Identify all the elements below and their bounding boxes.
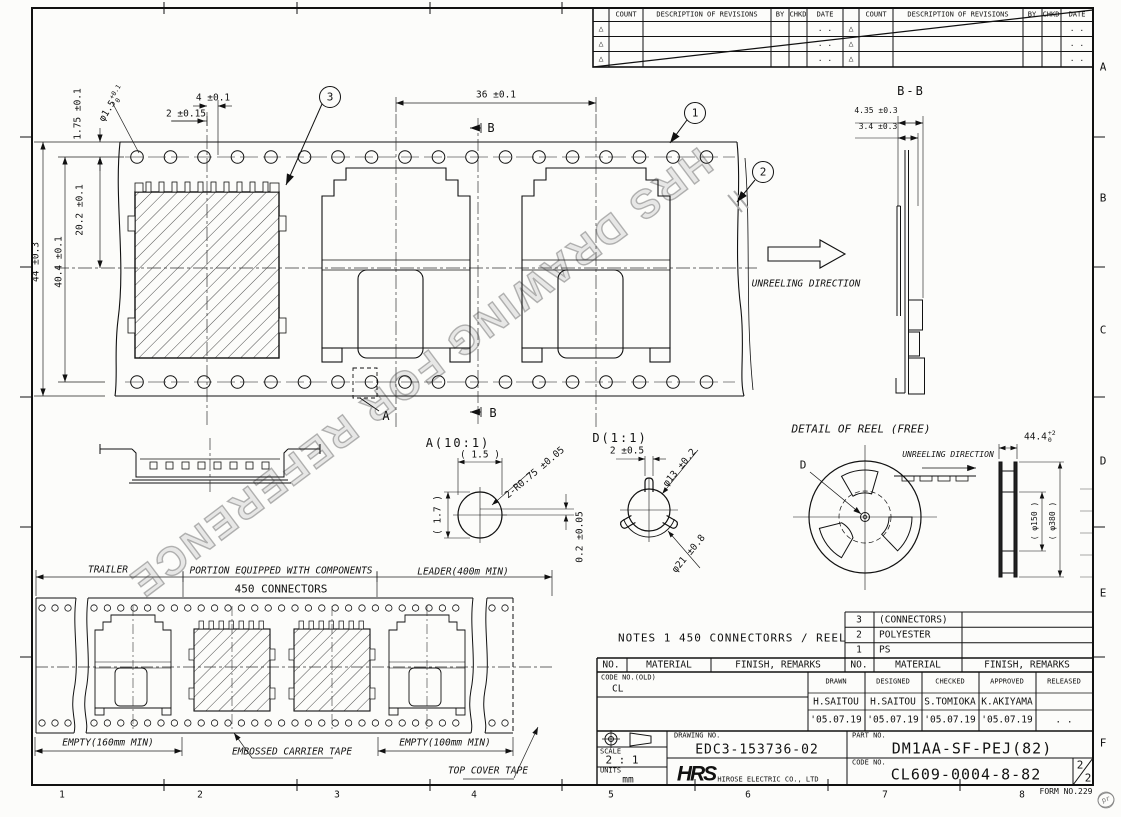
rev-by-header2: BY [1028, 12, 1036, 19]
role-checked: CHECKED [935, 679, 965, 686]
materials-material-header: MATERIAL [646, 660, 692, 670]
code-old-value: CL [612, 684, 623, 694]
zone-letter: A [1100, 62, 1107, 73]
signer-approved: K.AKIYAMA [981, 697, 1032, 707]
role-designed: DESIGNED [876, 679, 910, 686]
reel-side-view [999, 444, 1092, 577]
dim-reel-flange: ( φ380 ) [1049, 502, 1057, 541]
drawing-no-label: DRAWING NO. [674, 733, 720, 740]
detail-a-callout-label: A [382, 410, 391, 422]
reel-detail-d-label: D [800, 460, 807, 471]
date-checked: '05.07.19 [924, 715, 975, 725]
reel-view [793, 445, 976, 590]
zone-number: 6 [745, 790, 751, 800]
dim-a-offset: 0.2 ±0.05 [575, 511, 585, 562]
unreeling-direction-label: UNREELING DIRECTION [752, 279, 861, 289]
dim-hole-to-pocket: 2 ±0.15 [166, 109, 206, 119]
material-row-no: 1 [856, 645, 862, 655]
rev-date-dots: . . [818, 40, 832, 48]
code-no-value: CL609-0004-8-82 [891, 768, 1041, 783]
strip-leader-label: LEADER(400m MIN) [417, 567, 509, 577]
engineering-drawing-sheet: HRS DRAWING FOR REFERENCE [0, 0, 1121, 817]
sheet-total: 2 [1085, 773, 1092, 784]
signer-designed: H.SAITOU [870, 697, 916, 707]
strip-pocket-empty [95, 606, 171, 729]
strip-carrier-label: EMBOSSED CARRIER TAPE [232, 747, 352, 757]
date-designed: '05.07.19 [867, 715, 918, 725]
drawing-linework [0, 0, 1121, 817]
material-row-no: 2 [856, 630, 862, 640]
part-no-label: PART NO. [852, 733, 886, 740]
scale-value: 2 : 1 [605, 755, 638, 766]
reel-unreeling-label: UNREELING DIRECTION [902, 451, 994, 459]
material-row-name: POLYESTER [879, 630, 930, 640]
dim-reel-width-value: 44.4 [1024, 432, 1047, 443]
material-row-name: (CONNECTORS) [879, 615, 948, 625]
materials-no-header2: NO. [850, 660, 867, 670]
dim-tape-width: 44 ±0.3 [31, 242, 41, 282]
zone-number: 5 [608, 790, 614, 800]
rev-date-dots: . . [818, 55, 832, 63]
materials-finish-header: FINISH, REMARKS [735, 660, 821, 670]
rev-chkd-header2: CHKD [1043, 12, 1060, 19]
materials-finish-header2: FINISH, REMARKS [984, 660, 1070, 670]
dim-hole-span: 40.4 ±0.1 [54, 236, 64, 287]
part-no-value: DM1AA-SF-PEJ(82) [892, 742, 1053, 757]
notes-text: NOTES 1 450 CONNECTORRS / REEL [618, 633, 847, 644]
dim-reel-hub: ( φ150 ) [1031, 502, 1039, 541]
rev-chkd-header: CHKD [790, 12, 807, 19]
zone-letter: E [1100, 588, 1107, 599]
role-released: RELEASED [1047, 679, 1081, 686]
date-drawn: '05.07.19 [810, 715, 861, 725]
signer-checked: S.TOMIOKA [924, 697, 975, 707]
unreeling-arrow [768, 240, 845, 268]
tape-cross-section [100, 438, 320, 492]
balloon-leaders [286, 87, 774, 203]
rev-triangle-icon: △ [599, 25, 604, 33]
dim-a-width: ( 1.5 ) [460, 450, 500, 460]
balloon-2: 2 [760, 167, 767, 178]
rev-date-dots: . . [818, 25, 832, 33]
dim-d-tab: 2 ±0.5 [610, 446, 644, 456]
zone-number: 3 [334, 790, 340, 800]
dim-pocket-offset: 4 ±0.1 [196, 93, 230, 103]
strip-connectors-label: 450 CONNECTORS [235, 584, 328, 595]
materials-no-header: NO. [602, 660, 619, 670]
detail-d-title: D(1:1) [592, 432, 647, 444]
company-name: HIROSE ELECTRIC CO., LTD [717, 777, 818, 784]
dim-reel-width: 44.4+20 [1024, 430, 1056, 444]
material-row-name: PS [879, 645, 890, 655]
rev-date-dots: . . [1070, 25, 1084, 33]
rev-count-header2: COUNT [865, 12, 886, 19]
code-no-label: CODE NO. [852, 760, 886, 767]
dim-edge-to-hole: 1.75 ±0.1 [73, 88, 83, 139]
section-bb-view [855, 116, 925, 394]
units-value: mm [622, 775, 633, 785]
role-approved: APPROVED [990, 679, 1024, 686]
zone-number: 4 [471, 790, 477, 800]
form-no: FORM NO.229 [1040, 788, 1093, 796]
date-released: . . [1055, 715, 1072, 725]
zone-number: 8 [1019, 790, 1025, 800]
hrs-logo: HRS [677, 764, 715, 785]
dim-center-to-hole: 20.2 ±0.1 [75, 184, 85, 235]
zone-letter: C [1100, 325, 1107, 336]
dim-bb-outer: 4.35 ±0.3 [854, 107, 897, 115]
section-b-label-top: B [487, 122, 496, 134]
zone-letter: D [1100, 456, 1107, 467]
pocket-hatched [128, 112, 286, 428]
rev-date-header: DATE [817, 12, 834, 19]
rev-date-header2: DATE [1069, 12, 1086, 19]
material-row-no: 3 [856, 615, 862, 625]
rev-triangle-icon: △ [849, 25, 854, 33]
date-approved: '05.07.19 [981, 715, 1032, 725]
role-drawn: DRAWN [825, 679, 846, 686]
strip-pocket-hatched [189, 606, 275, 729]
rev-triangle-icon: △ [849, 40, 854, 48]
strip-cover-label: TOP COVER TAPE [448, 766, 528, 776]
dim-a-height: ( 1.7 ) [433, 495, 443, 535]
zone-number: 1 [59, 790, 65, 800]
sheet-number: 2 [1077, 760, 1084, 771]
balloon-3: 3 [327, 92, 334, 103]
drawing-no-value: EDC3-153736-02 [695, 744, 819, 757]
rev-triangle-icon: △ [599, 55, 604, 63]
strip-trailer-label: TRAILER [88, 565, 128, 575]
dim-bb-inner: 3.4 ±0.3 [859, 123, 898, 131]
zone-number: 2 [197, 790, 203, 800]
reel-title: DETAIL OF REEL (FREE) [791, 424, 930, 435]
strip-empty-right-label: EMPTY(100mm MIN) [399, 738, 491, 748]
section-b-label-bottom: B [489, 407, 498, 419]
detail-a-title: A(10:1) [426, 437, 491, 449]
rev-date-dots: . . [1070, 55, 1084, 63]
zone-letter: F [1100, 738, 1107, 749]
rev-count-header: COUNT [615, 12, 636, 19]
rev-triangle-icon: △ [599, 40, 604, 48]
dim-pocket-pitch: 36 ±0.1 [476, 90, 516, 100]
balloon-1: 1 [692, 108, 699, 119]
code-old-label: CODE NO.(OLD) [601, 675, 656, 682]
rev-triangle-icon: △ [849, 55, 854, 63]
rev-desc-header2: DESCRIPTION OF REVISIONS [907, 12, 1008, 19]
signer-drawn: H.SAITOU [813, 697, 859, 707]
section-bb-title: B-B [897, 85, 925, 97]
strip-portion-label: PORTION EQUIPPED WITH COMPONENTS [189, 566, 372, 576]
zone-number: 7 [882, 790, 888, 800]
rev-by-header: BY [776, 12, 784, 19]
section-callouts [353, 118, 481, 425]
strip-empty-left-label: EMPTY(160mm MIN) [62, 738, 154, 748]
materials-material-header2: MATERIAL [895, 660, 941, 670]
rev-date-dots: . . [1070, 40, 1084, 48]
dim-reel-width-tolerance: +20 [1048, 430, 1056, 444]
zone-letter: B [1100, 193, 1107, 204]
units-label: UNITS [600, 768, 621, 775]
rev-desc-header: DESCRIPTION OF REVISIONS [656, 12, 757, 19]
